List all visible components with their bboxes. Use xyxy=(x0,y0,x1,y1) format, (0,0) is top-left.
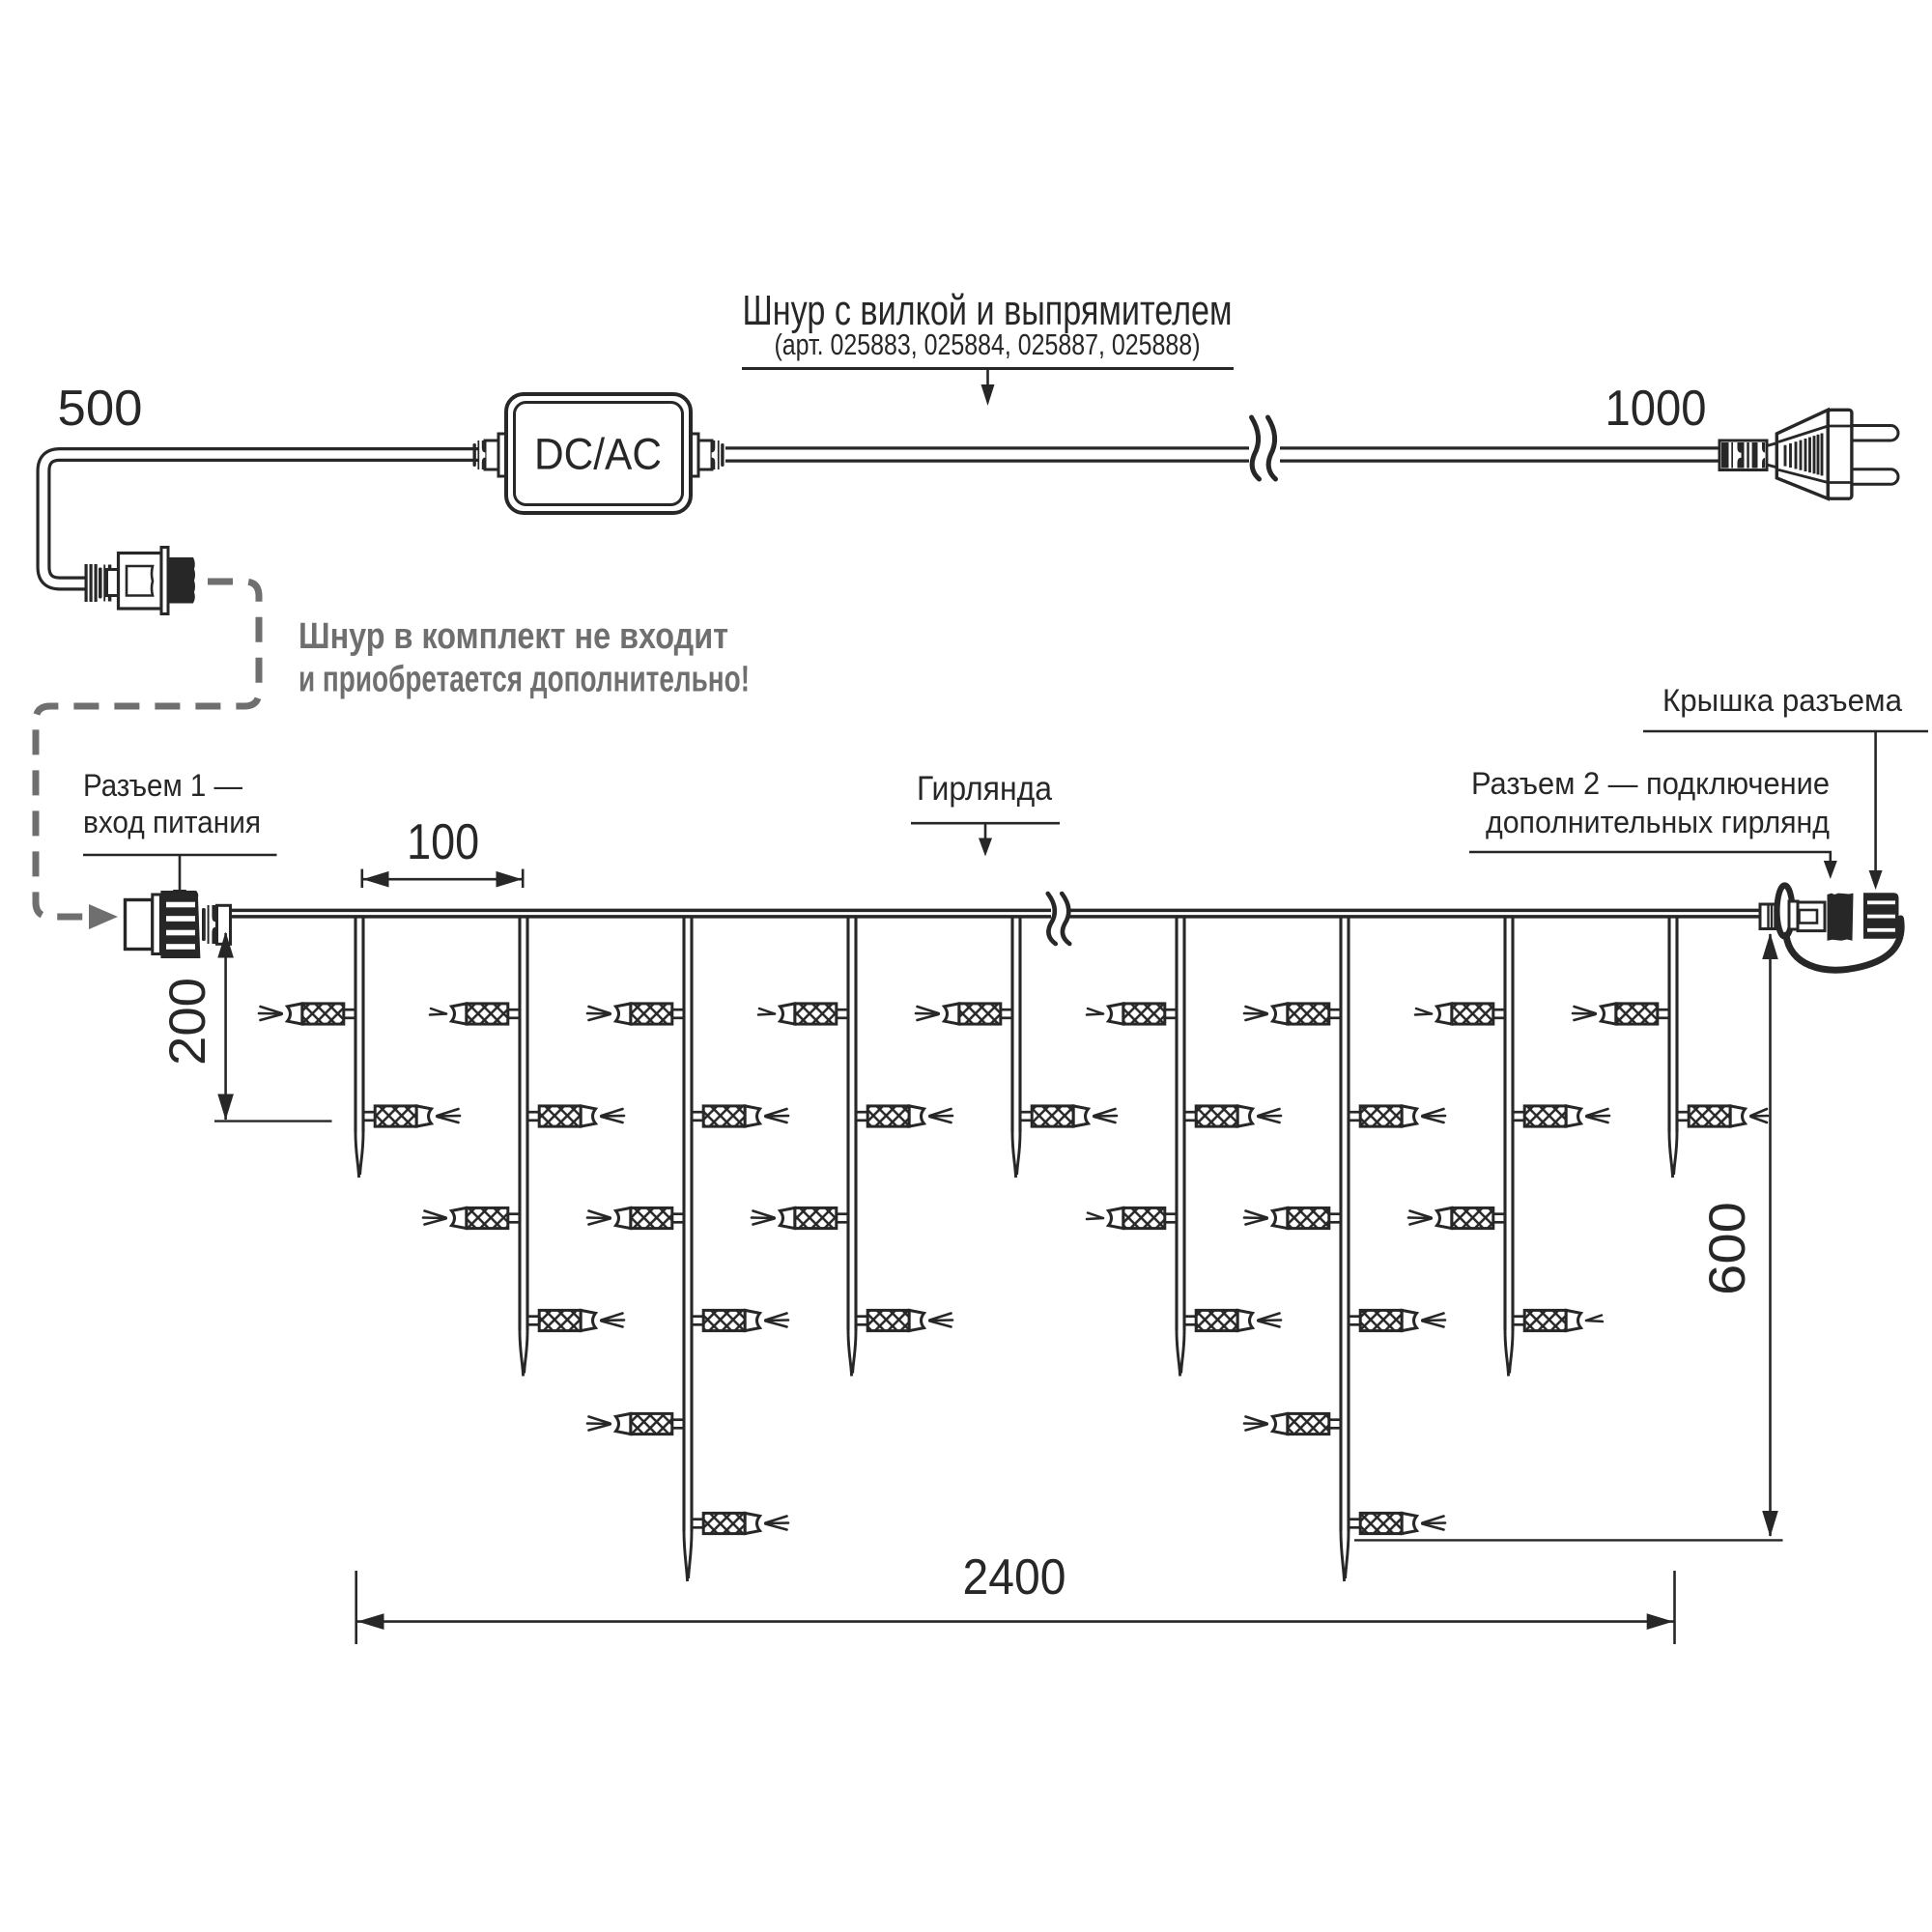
svg-text:200: 200 xyxy=(159,978,216,1065)
svg-text:Крышка разъема: Крышка разъема xyxy=(1662,683,1902,718)
svg-text:(арт. 025883, 025884, 025887,: (арт. 025883, 025884, 025887, 025888) xyxy=(775,327,1201,361)
svg-text:100: 100 xyxy=(407,814,479,870)
svg-text:Разъем 1 —: Разъем 1 — xyxy=(83,768,242,803)
svg-text:500: 500 xyxy=(58,381,143,437)
svg-text:вход питания: вход питания xyxy=(83,805,261,839)
svg-text:Гирлянда: Гирлянда xyxy=(917,770,1052,808)
svg-text:Шнур в комплект не входит: Шнур в комплект не входит xyxy=(298,616,728,657)
svg-text:и приобретается дополнительно!: и приобретается дополнительно! xyxy=(298,660,750,700)
svg-text:Разъем 2 — подключение: Разъем 2 — подключение xyxy=(1471,766,1830,801)
svg-text:2400: 2400 xyxy=(963,1549,1066,1605)
svg-text:600: 600 xyxy=(1699,1202,1756,1295)
svg-text:дополнительных гирлянд: дополнительных гирлянд xyxy=(1486,805,1830,839)
svg-text:1000: 1000 xyxy=(1605,381,1707,437)
svg-text:DC/AC: DC/AC xyxy=(534,430,662,479)
